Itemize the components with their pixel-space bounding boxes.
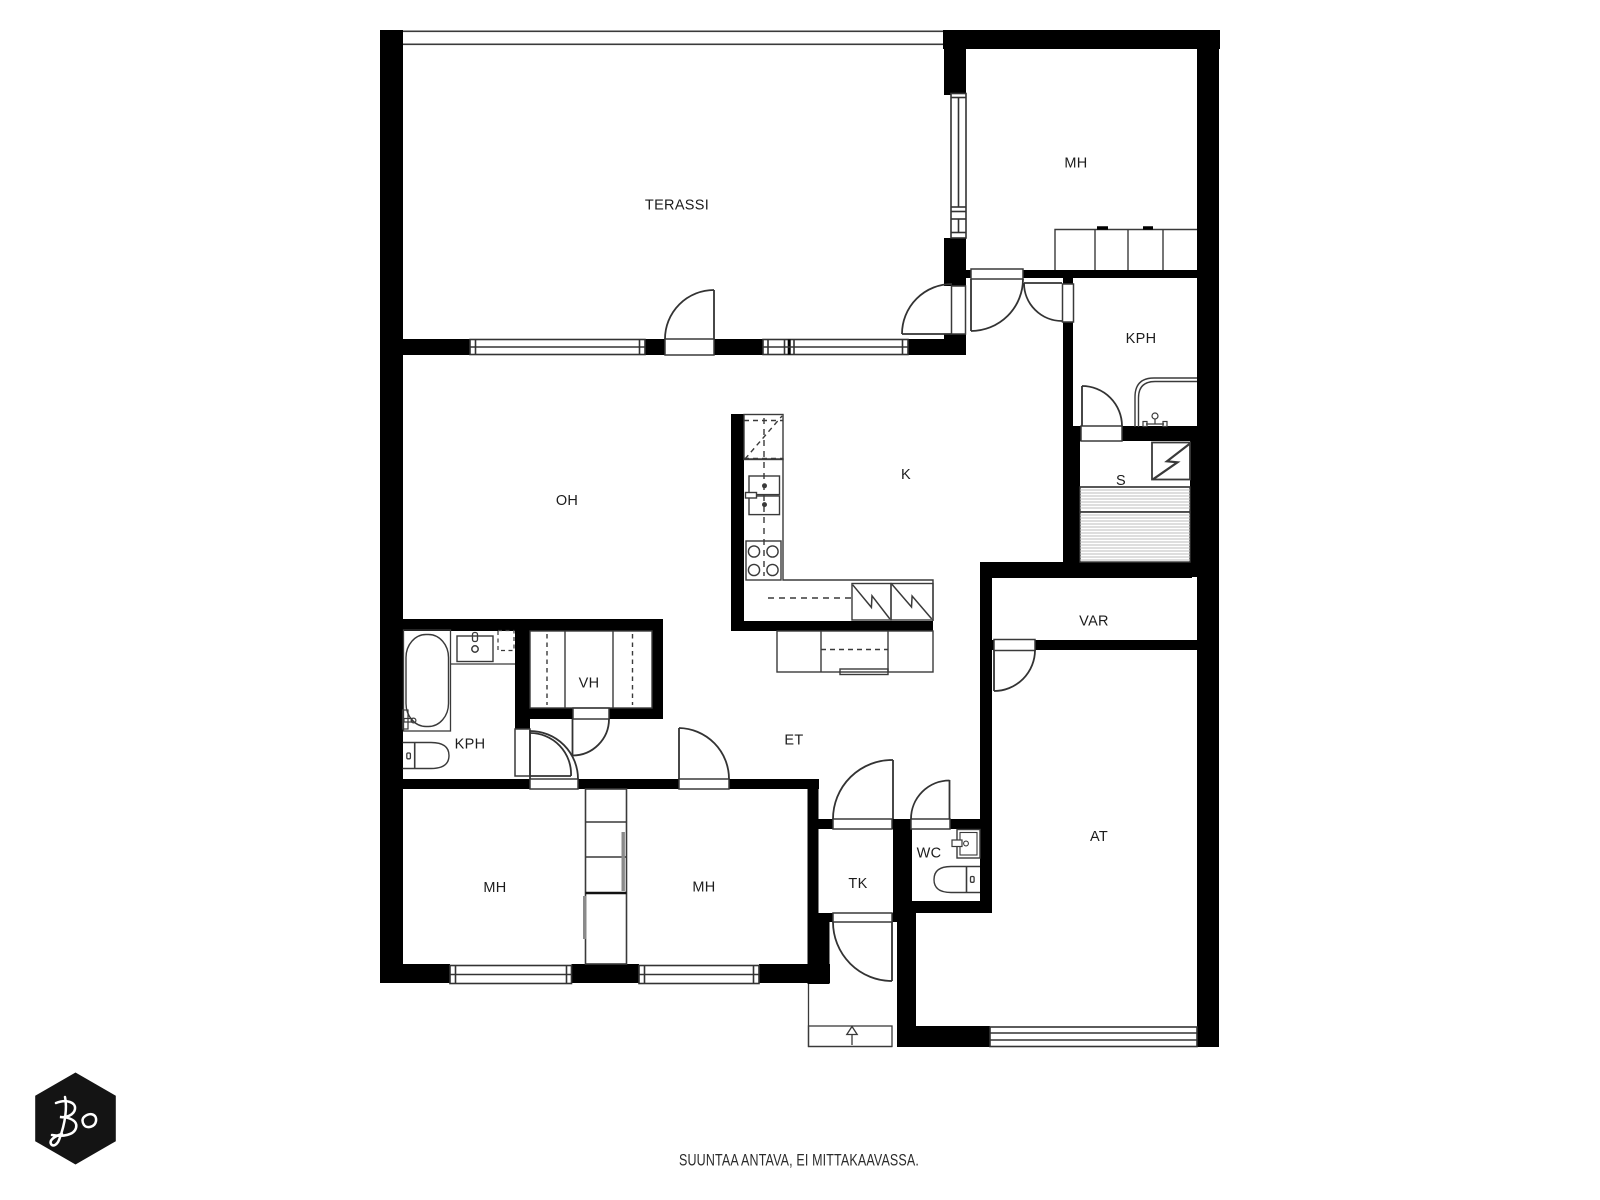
svg-text:KPH: KPH [1126,331,1157,347]
svg-text:SUUNTAA ANTAVA, EI MITTAKAAVAS: SUUNTAA ANTAVA, EI MITTAKAAVASSA. [679,1152,919,1170]
svg-text:ET: ET [784,733,803,749]
svg-text:TERASSI: TERASSI [645,198,709,214]
svg-text:MH: MH [483,880,506,896]
svg-text:VAR: VAR [1079,614,1109,630]
svg-text:TK: TK [848,876,867,892]
svg-text:AT: AT [1090,829,1108,845]
svg-text:WC: WC [917,846,942,862]
svg-text:K: K [901,467,911,483]
svg-text:VH: VH [579,676,600,692]
svg-text:MH: MH [1064,156,1087,172]
svg-text:S: S [1116,473,1126,489]
svg-text:MH: MH [692,880,715,896]
svg-text:OH: OH [556,493,578,509]
svg-text:KPH: KPH [455,737,486,753]
